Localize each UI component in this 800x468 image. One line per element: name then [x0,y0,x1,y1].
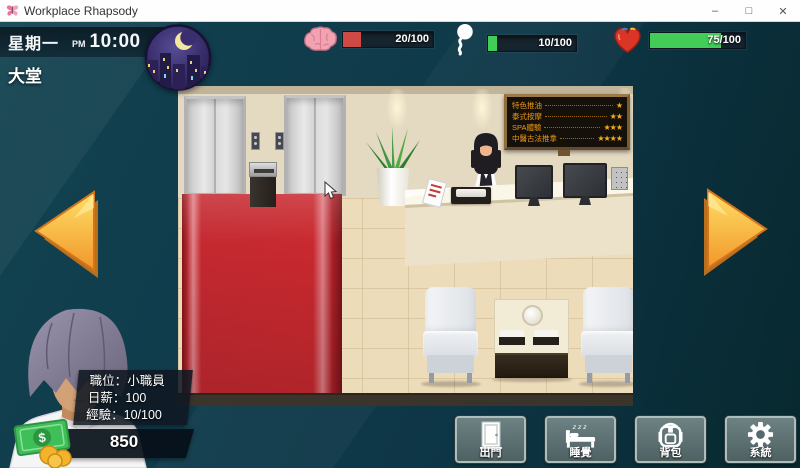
stat-value: 75/100 [707,33,741,48]
towel-stack [533,330,559,345]
svg-text:z z z: z z z [572,424,588,431]
elevator-call-panel[interactable] [251,132,260,150]
trash-bin [249,162,277,207]
game-area: 特色推油 ★ 泰式按摩 ★★ SPA體驗 ★★★ 中醫古法推拿 ★★★★ [0,22,800,468]
desk-monitor [563,163,607,198]
stat-fill [488,36,497,51]
menu-board: 特色推油 ★ 泰式按摩 ★★ SPA體驗 ★★★ 中醫古法推拿 ★★★★ [504,94,630,150]
info-row-experience: 經驗：10/100 [86,407,188,424]
sofa-base [585,355,632,373]
sofa-back [425,287,476,335]
menu-item-label: 泰式按摩 [512,111,542,122]
clock-label: 10:00 [90,31,141,53]
star-rating: ★★★★ [597,134,622,143]
sofa-leg [625,373,630,383]
info-value: 小職員 [127,374,165,388]
menu-item: 泰式按摩 ★★ [512,111,622,122]
sofa-leg [587,373,592,383]
stat-bar: 10/100 [487,35,577,52]
location-label: 大堂 [8,62,42,87]
menu-item: 特色推油 ★ [512,100,622,111]
nav-arrow-right[interactable] [700,186,774,282]
action-button-go-out[interactable]: 出門 [455,416,526,463]
cabinet-shadow [492,377,572,382]
info-value: 100 [125,391,146,405]
action-label: 睡覺 [547,444,614,460]
menu-item: 中醫古法推拿 ★★★★ [512,133,622,144]
menu-item-label: 中醫古法推拿 [512,133,557,144]
trash-bin-body [250,177,276,207]
desk-phone-keypad [611,167,628,190]
dotted-leader [544,127,600,128]
menu-item: SPA體驗 ★★★ [512,122,622,133]
sofa-seat [423,331,478,357]
info-row-position: 職位：小職員 [90,373,192,390]
sofa-right [581,287,633,385]
side-cabinet [495,353,568,378]
window-title: Workplace Rhapsody [24,4,138,18]
thought-bubble-icon [452,23,476,56]
action-button-backpack[interactable]: 背包 [635,416,706,463]
dotted-leader [560,138,594,139]
character-info-panel: 職位：小職員 日薪：100 經驗：10/100 [73,370,193,425]
dotted-leader [545,116,607,117]
stat-fill [343,32,361,47]
sofa-base [427,355,474,373]
wall-dispenser [522,305,543,326]
sofa-left [423,287,478,385]
crescent-moon-night-icon [143,24,213,91]
maximize-button[interactable]: □ [732,0,766,22]
dotted-leader [545,105,613,106]
elevator-door-left[interactable] [184,96,246,196]
cash-coins-icon: $ [12,415,78,468]
meridiem-label: PM [72,39,86,49]
brain-icon [303,25,338,53]
nav-arrow-left[interactable] [28,188,102,284]
stat-value: 20/100 [395,32,429,47]
info-row-salary: 日薪：100 [88,390,190,407]
trash-bin-slot [254,169,274,173]
mouse-cursor-icon [324,181,338,200]
info-label: 日薪： [88,391,126,405]
action-button-system[interactable]: 系統 [725,416,796,463]
butterfly-icon [6,4,19,17]
stat-bar: 75/100 [649,32,746,49]
action-label: 背包 [637,444,704,460]
star-rating: ★ [616,101,622,110]
minimize-button[interactable]: – [698,0,732,22]
stat-energy: 20/100 [303,25,434,53]
stat-value: 10/100 [538,36,572,51]
menu-item-label: SPA體驗 [512,122,541,133]
towel-tray [451,187,491,204]
sofa-leg [467,373,472,383]
info-value: 10/100 [124,408,162,422]
board-bracket [558,150,570,156]
stat-health: 75/100 [611,25,746,55]
day-label: 星期一 [8,30,59,54]
star-rating: ★★ [610,112,622,121]
stat-mood: 10/100 [452,23,577,56]
action-label: 系統 [727,444,794,460]
sofa-seat [581,331,633,357]
red-carpet [182,194,342,393]
action-bar: 出門 z z z 睡覺 背包 [455,416,796,463]
close-button[interactable]: ✕ [766,0,800,22]
star-rating: ★★★ [603,123,622,132]
window-controls: – □ ✕ [698,0,800,22]
stat-bar: 20/100 [342,31,434,48]
elevator-call-panel[interactable] [275,132,284,150]
action-label: 出門 [457,444,524,460]
trash-bin-lid [249,162,277,177]
desk-monitor [515,165,553,199]
info-label: 職位： [90,374,128,388]
action-button-sleep[interactable]: z z z 睡覺 [545,416,616,463]
scene-front-edge [178,393,633,406]
towel-stack [499,330,525,345]
sofa-back [583,287,633,335]
menu-item-label: 特色推油 [512,100,542,111]
sofa-leg [429,373,434,383]
titlebar: Workplace Rhapsody – □ ✕ [0,0,800,22]
scene-lobby: 特色推油 ★ 泰式按摩 ★★ SPA體驗 ★★★ 中醫古法推拿 ★★★★ [178,86,633,406]
heart-icon [611,25,644,55]
plant-leaves [364,126,420,174]
info-label: 經驗： [86,408,124,422]
